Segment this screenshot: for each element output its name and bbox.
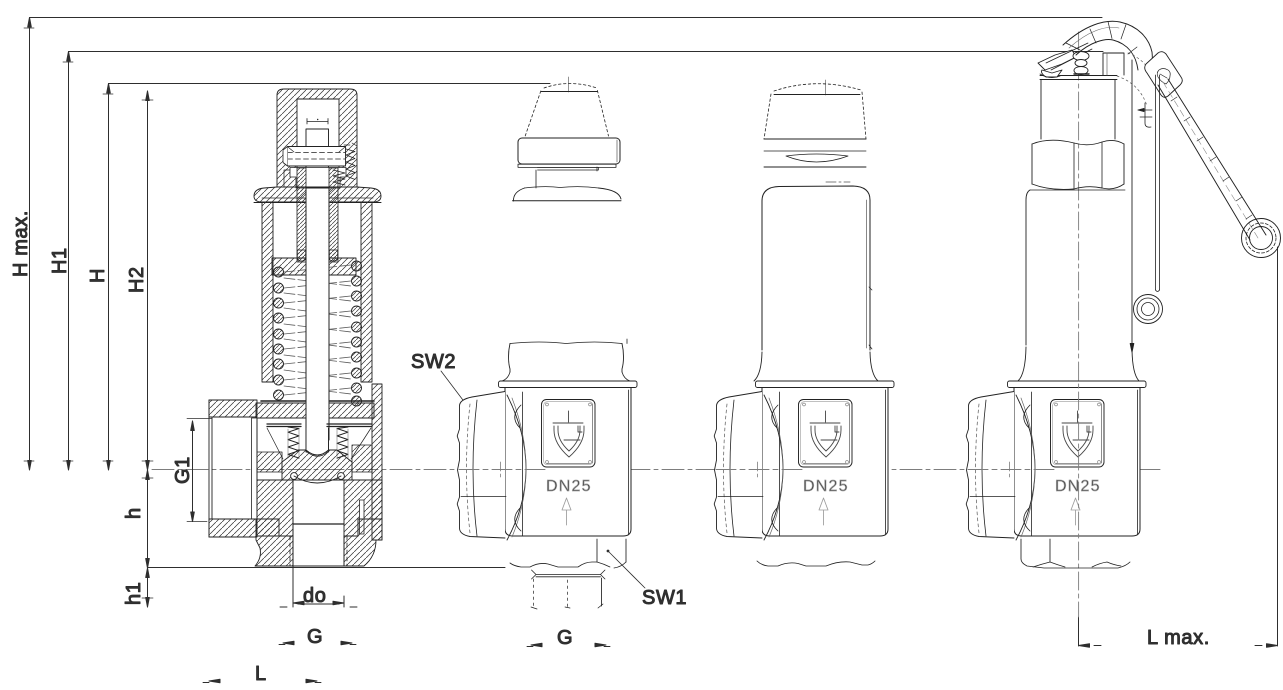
svg-text:H: H — [87, 268, 109, 283]
svg-text:L max.: L max. — [1147, 627, 1210, 649]
svg-text:h1: h1 — [123, 582, 145, 605]
svg-text:DN25: DN25 — [546, 478, 592, 495]
svg-text:H max.: H max. — [10, 210, 32, 277]
svg-text:SW2: SW2 — [411, 351, 456, 373]
svg-text:H2: H2 — [126, 266, 148, 293]
svg-text:G: G — [307, 626, 323, 648]
svg-text:G1: G1 — [172, 456, 194, 484]
svg-text:h: h — [123, 507, 145, 519]
svg-text:L: L — [255, 663, 267, 685]
svg-text:SW1: SW1 — [642, 587, 687, 609]
svg-text:G: G — [557, 627, 573, 649]
svg-text:H1: H1 — [49, 247, 71, 274]
